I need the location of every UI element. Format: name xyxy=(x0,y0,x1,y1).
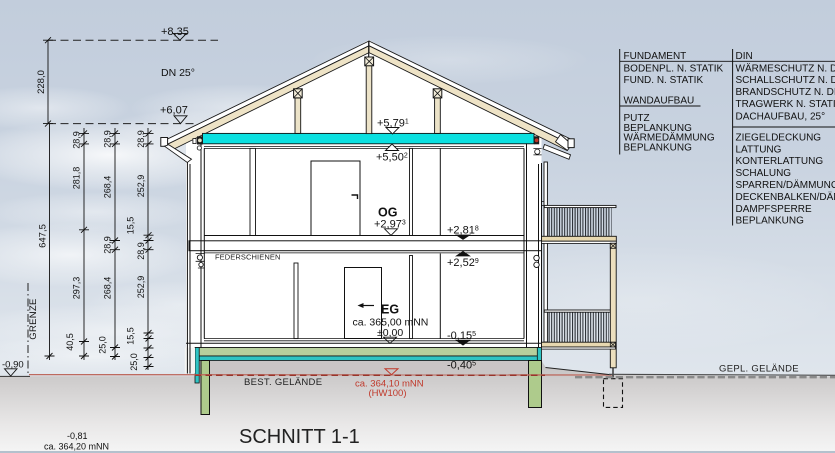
svg-text:FEDERSCHIENEN: FEDERSCHIENEN xyxy=(215,253,280,262)
svg-text:DECKENBALKEN/DÄMMUNG: DECKENBALKEN/DÄMMUNG xyxy=(736,191,835,203)
svg-text:BEST. GELÄNDE: BEST. GELÄNDE xyxy=(244,377,322,388)
svg-text:BEPLANKUNG: BEPLANKUNG xyxy=(736,216,805,227)
svg-text:252,9: 252,9 xyxy=(136,175,146,198)
svg-text:BODENPL. N. STATIK: BODENPL. N. STATIK xyxy=(624,63,724,74)
svg-text:40,5: 40,5 xyxy=(65,333,75,351)
svg-text:+8,35: +8,35 xyxy=(161,26,189,38)
svg-text:SCHNITT 1-1: SCHNITT 1-1 xyxy=(239,426,360,448)
svg-text:15,5: 15,5 xyxy=(126,327,136,345)
svg-text:-0,405: -0,405 xyxy=(447,360,476,372)
svg-text:WÄRMESCHUTZ N. DIN: WÄRMESCHUTZ N. DIN xyxy=(736,62,835,74)
svg-text:28,9: 28,9 xyxy=(103,236,113,254)
svg-text:ZIEGELDECKUNG: ZIEGELDECKUNG xyxy=(736,132,822,143)
svg-text:DIN: DIN xyxy=(736,51,753,62)
svg-text:ca. 364,20 mNN: ca. 364,20 mNN xyxy=(44,442,109,452)
svg-text:28,9: 28,9 xyxy=(136,130,146,148)
svg-text:GEPL. GELÄNDE: GEPL. GELÄNDE xyxy=(719,364,799,375)
svg-text:SPARREN/DÄMMUNG: SPARREN/DÄMMUNG xyxy=(736,179,835,191)
svg-text:KONTERLATTUNG: KONTERLATTUNG xyxy=(736,156,824,167)
svg-text:SCHALLSCHUTZ N. DIN: SCHALLSCHUTZ N. DIN xyxy=(736,75,835,86)
svg-text:GRENZE: GRENZE xyxy=(28,298,39,339)
svg-text:647,5: 647,5 xyxy=(38,224,49,248)
svg-text:(HW100): (HW100) xyxy=(369,388,407,399)
svg-text:228,0: 228,0 xyxy=(36,70,47,94)
svg-text:28,9: 28,9 xyxy=(103,130,113,148)
svg-text:252,9: 252,9 xyxy=(136,276,146,299)
svg-text:+2,529: +2,529 xyxy=(447,257,479,269)
svg-text:-0,81: -0,81 xyxy=(67,431,88,441)
svg-text:15,5: 15,5 xyxy=(126,217,136,235)
svg-text:FUND. N. STATIK: FUND. N. STATIK xyxy=(624,75,704,86)
svg-text:28,9: 28,9 xyxy=(72,131,82,149)
svg-text:268,4: 268,4 xyxy=(103,277,113,300)
svg-text:WANDAUFBAU: WANDAUFBAU xyxy=(624,95,695,106)
svg-text:281,8: 281,8 xyxy=(72,167,82,190)
svg-text:DAMPFSPERRE: DAMPFSPERRE xyxy=(736,204,812,215)
svg-text:268,4: 268,4 xyxy=(103,176,113,199)
svg-text:+2,818: +2,818 xyxy=(447,224,479,236)
svg-text:BEPLANKUNG: BEPLANKUNG xyxy=(624,142,693,153)
svg-text:BRANDSCHUTZ N. DIN: BRANDSCHUTZ N. DIN xyxy=(736,87,835,98)
svg-text:+6,07: +6,07 xyxy=(160,105,188,117)
svg-text:25,0: 25,0 xyxy=(98,336,108,354)
svg-text:+5,502: +5,502 xyxy=(376,152,408,164)
svg-text:DN 25°: DN 25° xyxy=(161,67,195,79)
svg-text:TRAGWERK N. STATIK: TRAGWERK N. STATIK xyxy=(736,99,835,110)
svg-text:FUNDAMENT: FUNDAMENT xyxy=(624,51,687,62)
svg-text:DACHAUFBAU, 25°: DACHAUFBAU, 25° xyxy=(736,112,826,123)
svg-text:297,3: 297,3 xyxy=(72,277,82,300)
svg-text:LATTUNG: LATTUNG xyxy=(736,144,782,155)
svg-text:EG: EG xyxy=(381,303,399,317)
svg-text:SCHALUNG: SCHALUNG xyxy=(736,168,792,179)
svg-text:25,0: 25,0 xyxy=(129,353,139,371)
svg-text:28,9: 28,9 xyxy=(136,242,146,260)
svg-text:OG: OG xyxy=(378,206,397,220)
